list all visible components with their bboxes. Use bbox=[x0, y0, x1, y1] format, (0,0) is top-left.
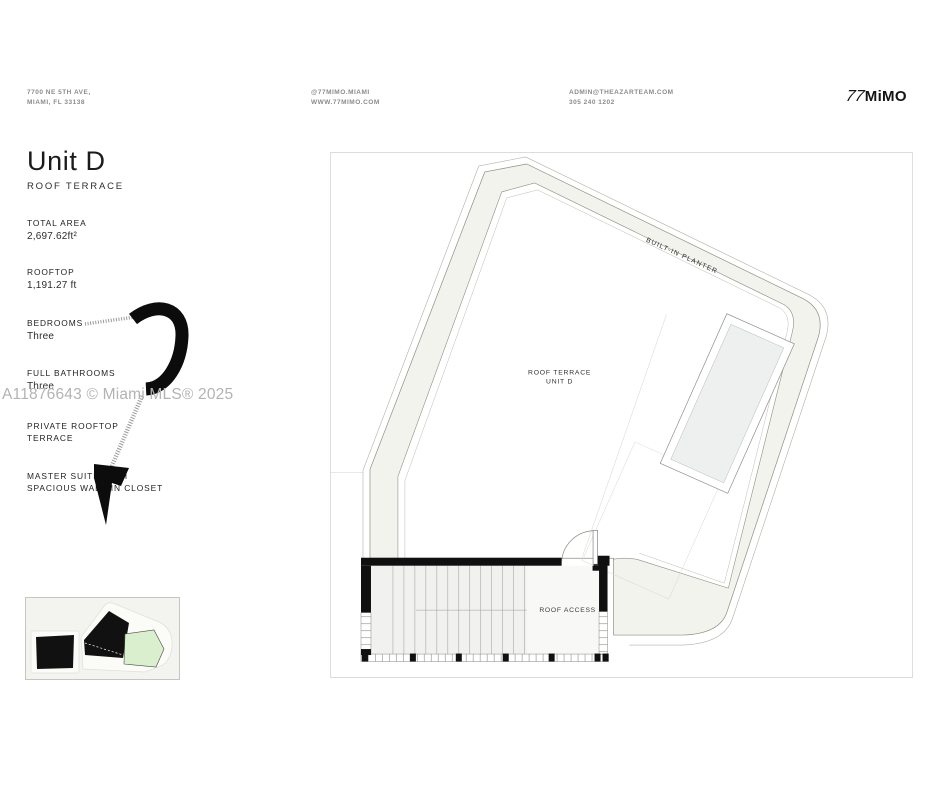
page-title: Unit D bbox=[27, 146, 124, 177]
stat-label: TOTAL AREA bbox=[27, 217, 87, 229]
building-footprint-left bbox=[36, 635, 74, 669]
stat-label: BEDROOMS bbox=[27, 317, 83, 329]
page-subtitle: ROOF TERRACE bbox=[27, 181, 124, 192]
arrow-shaft bbox=[108, 396, 142, 475]
railing-bottom bbox=[361, 654, 609, 661]
railing-right bbox=[599, 612, 607, 655]
room-label-line1: ROOF TERRACE bbox=[528, 370, 591, 377]
stat-label: ROOFTOP bbox=[27, 266, 76, 278]
header-contact: ADMIN@THEAZARTEAM.COM 305 240 1202 bbox=[569, 88, 674, 108]
mls-watermark: A11876643 © Miami MLS® 2025 bbox=[2, 386, 233, 404]
title-block: Unit D ROOF TERRACE bbox=[27, 146, 124, 192]
stat-rooftop: ROOFTOP 1,191.27 ft bbox=[27, 266, 76, 291]
header-address: 7700 NE 5TH AVE, MIAMI, FL 33138 bbox=[27, 88, 91, 108]
logo-mimo: MiMO bbox=[865, 88, 907, 105]
brochure-page: 7700 NE 5TH AVE, MIAMI, FL 33138 @77MIMO… bbox=[0, 0, 940, 788]
stat-value: 2,697.62ft² bbox=[27, 231, 87, 242]
arrow-head bbox=[94, 464, 129, 525]
railing-left bbox=[361, 613, 371, 655]
door-hinge-block bbox=[593, 566, 601, 571]
logo-77: 77 bbox=[844, 88, 865, 106]
contact-email: ADMIN@THEAZARTEAM.COM bbox=[569, 88, 674, 98]
header-social: @77MIMO.MIAMI WWW.77MIMO.COM bbox=[311, 88, 380, 108]
wall-left bbox=[361, 566, 371, 613]
roof-access-label: ROOF ACCESS bbox=[539, 607, 596, 614]
address-line1: 7700 NE 5TH AVE, bbox=[27, 88, 91, 98]
door-leaf bbox=[593, 530, 597, 564]
address-line2: MIAMI, FL 33138 bbox=[27, 98, 91, 108]
arrow-hatch-top bbox=[85, 317, 135, 324]
floor-plan: BUILT-IN PLANTER ROOF TERRACE UNIT D ROO… bbox=[330, 152, 913, 678]
social-handle: @77MIMO.MIAMI bbox=[311, 88, 380, 98]
website-url: WWW.77MIMO.COM bbox=[311, 98, 380, 108]
brand-logo: 77MiMO bbox=[846, 88, 907, 106]
contact-phone: 305 240 1202 bbox=[569, 98, 674, 108]
stat-value: 1,191.27 ft bbox=[27, 280, 76, 291]
decorative-arrow-graphic bbox=[80, 292, 195, 527]
stat-value: Three bbox=[27, 331, 83, 342]
arrow-hook bbox=[133, 309, 182, 389]
room-label-line2: UNIT D bbox=[546, 379, 573, 386]
site-key-map bbox=[25, 597, 180, 680]
stat-bedrooms: BEDROOMS Three bbox=[27, 317, 83, 342]
wall-top bbox=[361, 558, 562, 566]
stat-total-area: TOTAL AREA 2,697.62ft² bbox=[27, 217, 87, 242]
